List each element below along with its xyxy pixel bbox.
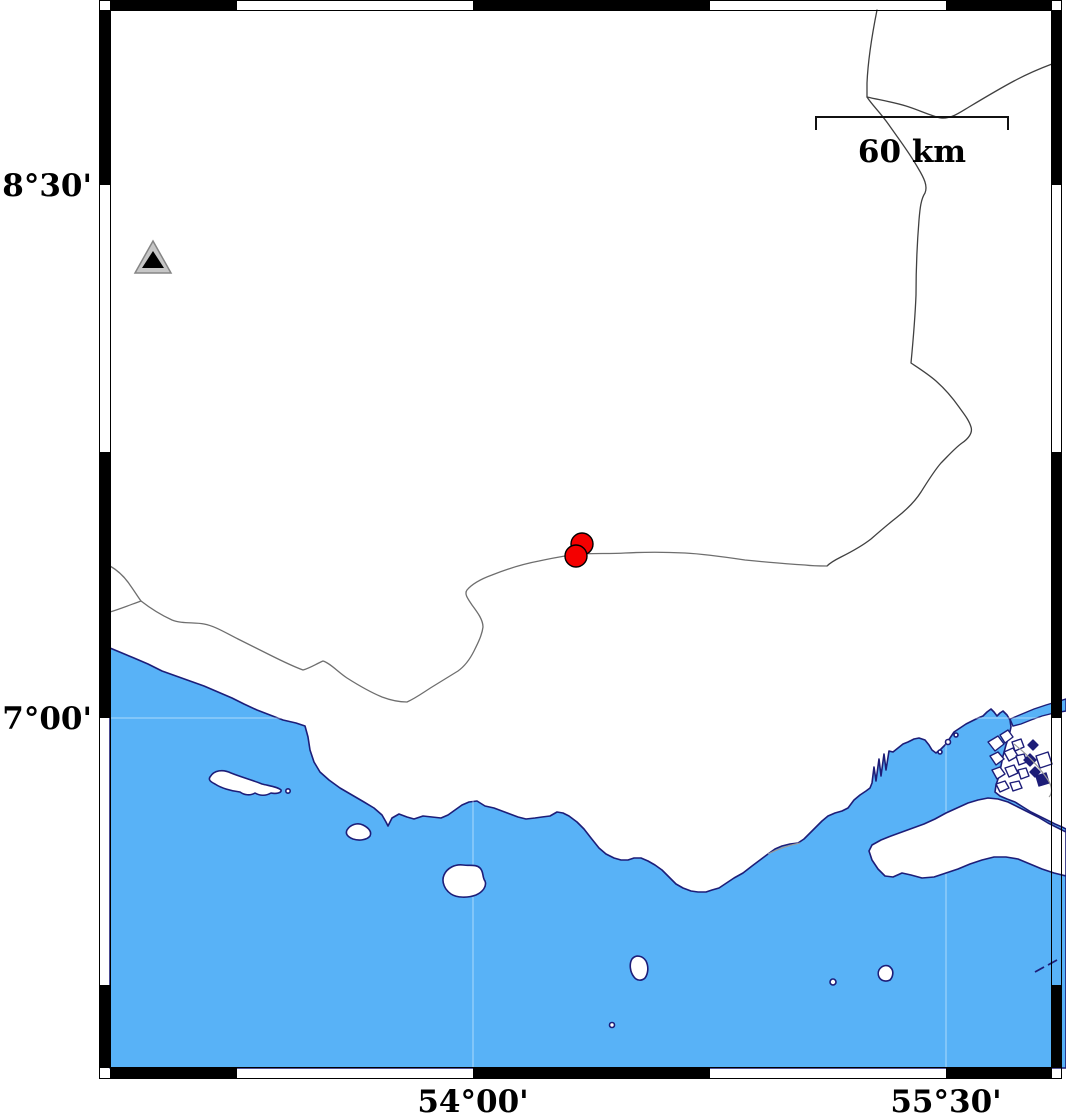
earthquake-marker	[565, 545, 587, 567]
islet-dot	[946, 740, 951, 745]
island-medium	[443, 865, 486, 897]
scale-bar-label: 60 km	[858, 134, 966, 170]
islet-dot	[954, 733, 958, 737]
island-teardrop	[630, 956, 648, 980]
lat-label-top: 28°30'	[0, 168, 92, 204]
lon-label-left: 54°00'	[417, 1084, 528, 1119]
islet-dot	[286, 789, 290, 793]
map-canvas: 60 km 28°30' 27°00' 54°00' 55°30	[0, 0, 1066, 1119]
islet-dot	[830, 979, 836, 985]
lon-label-right: 55°30'	[890, 1084, 1001, 1119]
islet-dot	[610, 1023, 615, 1028]
lat-label-bottom: 27°00'	[0, 701, 92, 737]
map-stage: 60 km 28°30' 27°00' 54°00' 55°30	[0, 0, 1066, 1119]
island-small	[878, 966, 893, 981]
islet-dot	[938, 750, 942, 754]
